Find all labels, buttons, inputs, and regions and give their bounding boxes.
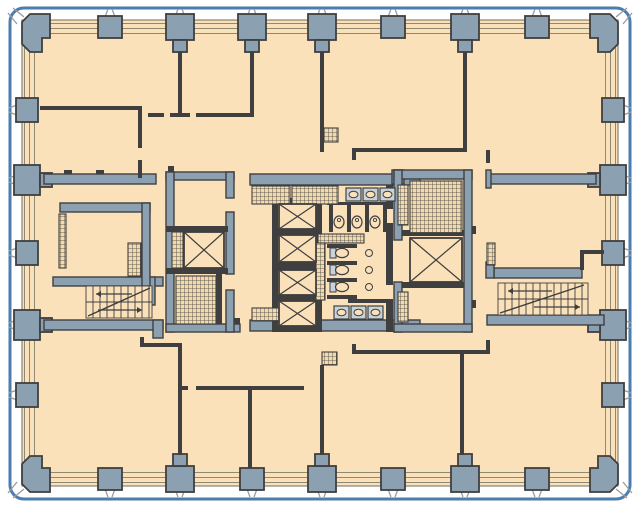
toilet-fixture [330,282,349,292]
interior-wall [196,386,304,390]
stair [86,286,152,318]
floor-drain [366,250,373,257]
urinal-fixture [352,216,362,228]
perimeter-column-small [602,98,624,122]
column-stem [458,40,472,52]
interior-wall [272,262,322,270]
sink-fixture [363,188,378,201]
interior-wall [472,226,476,234]
interior-wall [486,150,490,163]
floor-drain [366,284,373,291]
interior-wall [327,244,357,248]
sink-bowl [354,309,363,316]
interior-wall [248,390,252,468]
column-stem [173,454,187,466]
toilet-bowl [336,265,349,274]
stair [498,283,588,315]
interior-wall [140,337,144,343]
interior-wall [386,223,393,285]
elevator-shaft [279,301,316,326]
toilet-fixture [330,265,349,275]
core-wall [464,170,472,332]
interior-wall [182,386,188,390]
interior-wall [352,344,356,350]
interior-wall [178,52,182,113]
interior-wall [472,300,476,308]
column-stem [173,40,187,52]
shaft-hatch [172,232,183,268]
shaft-hatch [322,352,337,365]
core-wall [142,203,150,286]
elevator-shaft [279,270,316,295]
interior-wall [140,343,182,347]
interior-wall [486,340,490,350]
shaft-hatch [398,292,408,322]
interior-wall [348,299,392,303]
elevator-shaft [279,235,316,262]
sink-bowl [337,309,346,316]
interior-wall [352,148,464,152]
sink-fixture [346,188,361,201]
toilet-fixture [330,248,349,258]
interior-wall [347,204,351,232]
perimeter-column-small [525,16,549,38]
interior-wall [178,343,182,455]
core-wall [44,320,163,330]
shaft-hatch [316,243,325,300]
perimeter-column-large [308,14,336,40]
perimeter-column-small [16,383,38,407]
column-stem [315,454,329,466]
interior-wall [320,365,324,455]
core-wall [226,212,234,274]
interior-wall [196,113,254,117]
perimeter-column-small [525,468,549,490]
interior-wall [138,106,142,148]
interior-wall [138,160,142,178]
floor-drain [366,267,373,274]
core-wall [226,172,234,198]
core-wall [166,172,234,180]
interior-wall [383,204,387,232]
floor-plan-canvas [0,0,640,507]
sink-fixture [380,188,395,201]
sink-bowl [383,191,392,198]
shaft-hatch [59,214,66,268]
shaft-hatch [318,234,364,243]
shaft-hatch [410,181,462,233]
interior-wall [250,52,254,117]
core-wall [394,324,472,332]
core-wall [494,268,582,278]
shaft-hatch [128,243,141,276]
shaft-hatch [324,128,338,142]
core-wall [486,170,491,188]
column-stem [315,40,329,52]
sink-fixture [368,306,383,319]
perimeter-column-small [16,98,38,122]
sink-fixture [334,306,349,319]
elevator-shaft [184,232,224,268]
interior-wall [352,350,490,354]
perimeter-column-large [166,466,194,492]
sink-bowl [371,309,380,316]
perimeter-column-large [308,466,336,492]
core-wall [394,170,472,179]
interior-wall [327,261,357,265]
perimeter-column-small [16,241,38,265]
perimeter-column-small [98,16,122,38]
perimeter-column-large [14,165,40,195]
interior-wall [386,299,393,332]
core-wall [60,203,150,212]
perimeter-column-small [381,16,405,38]
interior-wall [148,113,164,117]
interior-wall [168,166,174,172]
perimeter-column-large [600,165,626,195]
interior-wall [216,274,222,324]
core-wall [153,320,163,338]
toilet-bowl [336,282,349,291]
column-stem [245,40,259,52]
interior-wall [329,204,333,232]
interior-wall [96,170,104,174]
core-wall [487,315,604,325]
elevator-shaft [279,204,316,229]
perimeter-column-small [602,241,624,265]
interior-wall [352,152,356,160]
interior-wall [320,52,324,152]
column-stem [458,454,472,466]
perimeter-column-large [14,310,40,340]
perimeter-column-large [238,14,266,40]
interior-wall [327,278,357,282]
interior-wall [580,250,584,270]
shaft-hatch [487,243,495,265]
perimeter-column-small [240,468,264,490]
core-wall [490,174,596,184]
floor-plan [0,0,640,507]
core-wall [226,290,234,332]
interior-wall [64,170,72,174]
interior-wall [170,113,190,117]
sink-fixture [351,306,366,319]
urinal-fixture [334,216,344,228]
interior-wall [40,106,142,110]
perimeter-column-large [451,466,479,492]
toilet-bowl [336,248,349,257]
perimeter-column-small [98,468,122,490]
elevator-shaft [410,238,462,282]
shaft-hatch [176,276,216,324]
interior-wall [234,318,240,324]
shaft-hatch [292,186,338,204]
perimeter-column-large [451,14,479,40]
sink-bowl [366,191,375,198]
urinal-fixture [370,216,380,228]
perimeter-column-large [166,14,194,40]
perimeter-column-small [602,383,624,407]
sink-bowl [349,191,358,198]
shaft-hatch [398,185,408,225]
interior-wall [460,354,464,455]
perimeter-column-small [381,468,405,490]
interior-wall [365,204,369,232]
interior-wall [463,52,467,152]
shaft-hatch [252,186,290,204]
interior-wall [327,295,357,299]
